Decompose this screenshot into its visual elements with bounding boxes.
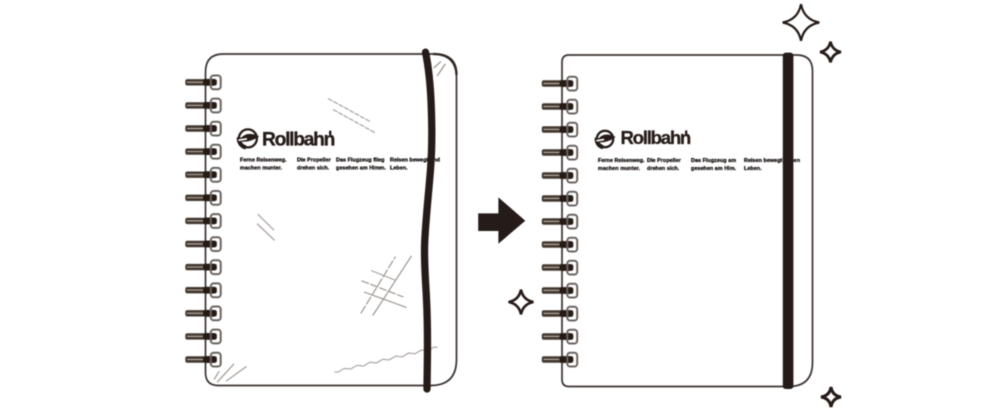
- svg-text:Die Propeller: Die Propeller: [647, 158, 682, 164]
- svg-text:machen munter.: machen munter.: [240, 165, 282, 171]
- svg-text:Ferne Reisenweg.: Ferne Reisenweg.: [240, 157, 287, 163]
- svg-text:gesehen am Him.: gesehen am Him.: [691, 166, 737, 172]
- svg-text:drehen sich.: drehen sich.: [647, 166, 680, 172]
- svg-text:Leben.: Leben.: [744, 166, 762, 172]
- svg-text:machen munter.: machen munter.: [598, 166, 640, 172]
- svg-text:Rollbahn: Rollbahn: [621, 127, 691, 148]
- svg-text:gesehen am Himm.: gesehen am Himm.: [336, 165, 386, 171]
- svg-text:Leben.: Leben.: [390, 165, 408, 171]
- svg-text:Das Flugzeug am: Das Flugzeug am: [691, 158, 736, 164]
- svg-text:drehen sich.: drehen sich.: [297, 165, 330, 171]
- svg-text:Das Flugzeug flieg: Das Flugzeug flieg: [336, 157, 385, 163]
- svg-text:Rollbahn: Rollbahn: [262, 130, 335, 151]
- svg-text:Ferne Reisenweg.: Ferne Reisenweg.: [598, 158, 645, 164]
- svg-text:Die Propeller: Die Propeller: [297, 157, 332, 163]
